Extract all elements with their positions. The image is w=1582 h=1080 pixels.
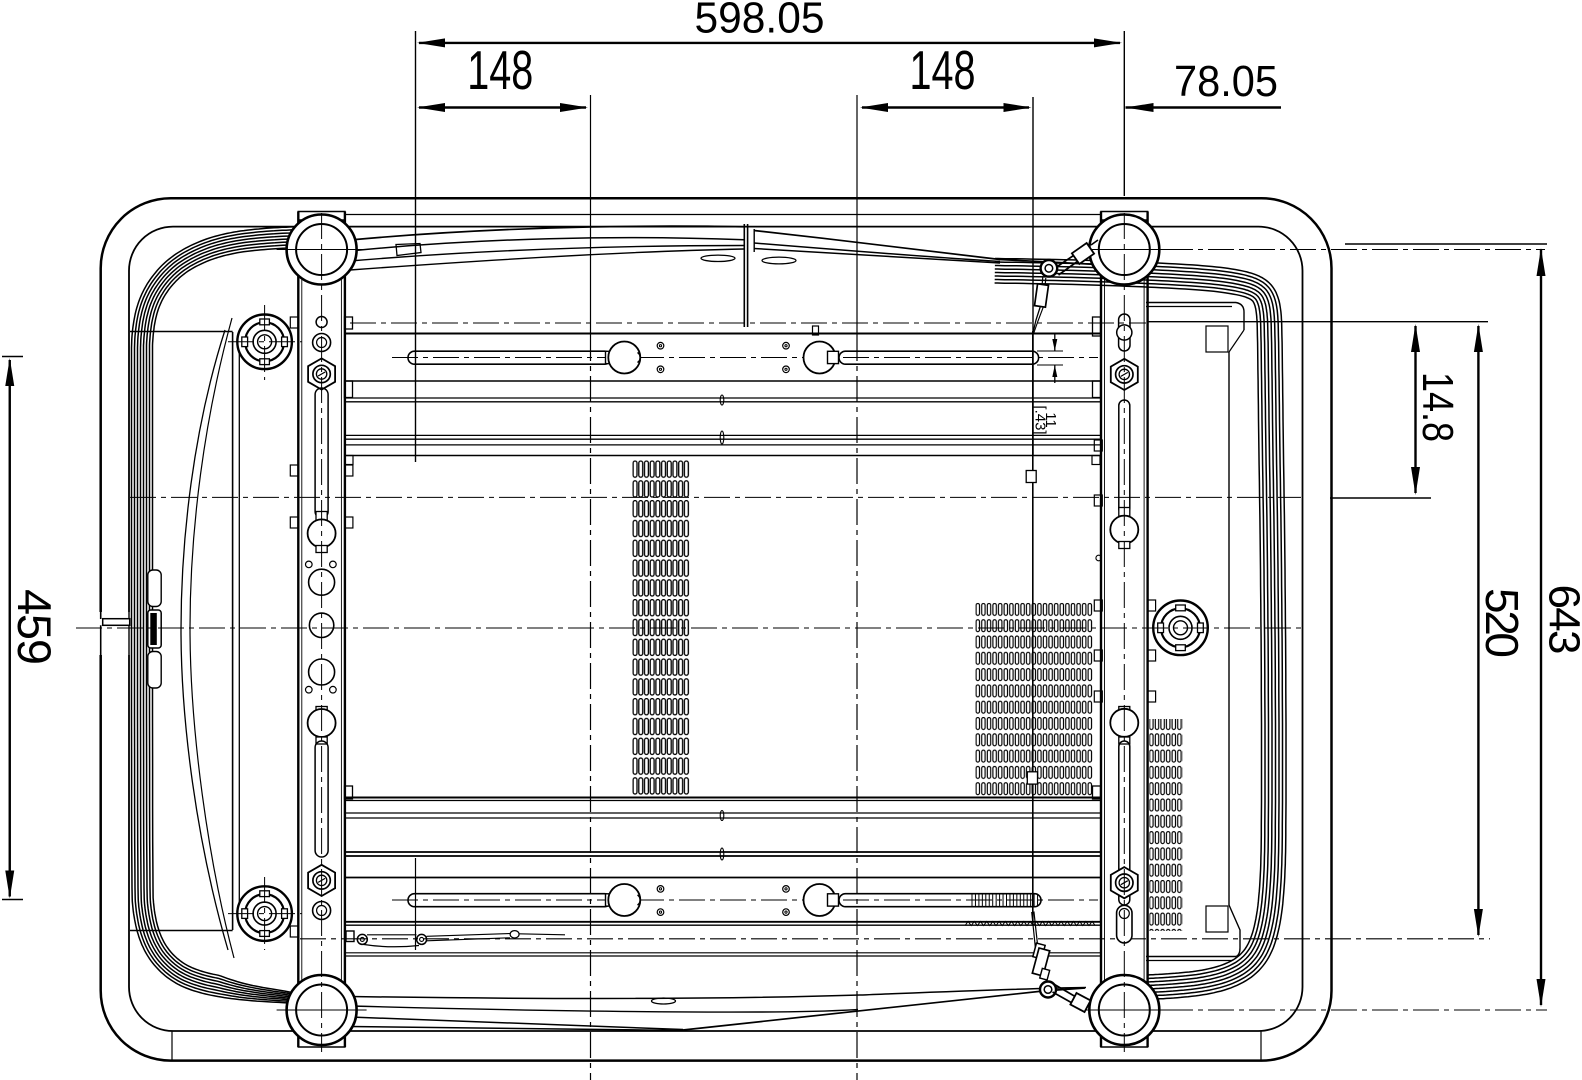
svg-text:520: 520 [1476, 588, 1528, 658]
svg-text:148: 148 [910, 39, 976, 101]
svg-text:643: 643 [1540, 585, 1582, 655]
svg-text:[.43]: [.43] [1032, 405, 1049, 434]
svg-text:148: 148 [467, 39, 533, 101]
svg-text:78.05: 78.05 [1174, 57, 1278, 106]
svg-text:598.05: 598.05 [695, 0, 825, 43]
svg-text:459: 459 [8, 589, 61, 665]
svg-text:14.8: 14.8 [1413, 372, 1462, 442]
